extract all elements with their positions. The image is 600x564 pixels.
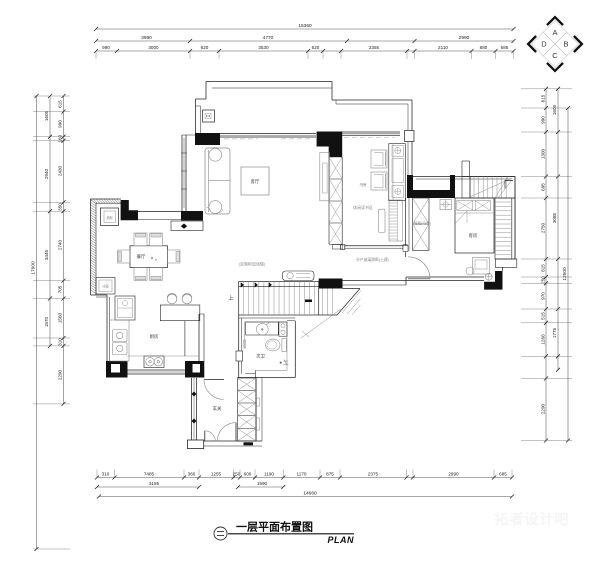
svg-text:2990: 2990 xyxy=(459,35,470,41)
svg-text:1605: 1605 xyxy=(552,104,557,115)
svg-text:拓者设计吧: 拓者设计吧 xyxy=(495,511,570,527)
svg-text:客房: 客房 xyxy=(469,232,478,239)
svg-text:990: 990 xyxy=(540,116,545,124)
svg-text:3155: 3155 xyxy=(149,481,160,486)
svg-text:2740: 2740 xyxy=(57,239,62,250)
svg-text:515: 515 xyxy=(540,312,545,320)
svg-text:3000: 3000 xyxy=(148,45,159,50)
svg-text:上: 上 xyxy=(228,294,234,302)
svg-text:3530: 3530 xyxy=(258,45,269,50)
svg-text:1190: 1190 xyxy=(264,471,274,476)
svg-text:一层平面布置图: 一层平面布置图 xyxy=(236,520,313,534)
svg-text:705: 705 xyxy=(57,285,62,293)
svg-text:次卫: 次卫 xyxy=(256,353,265,360)
svg-text:客厅: 客厅 xyxy=(251,178,260,185)
svg-text:685: 685 xyxy=(499,471,507,476)
svg-text:2750: 2750 xyxy=(540,222,545,233)
svg-text:620: 620 xyxy=(201,45,209,50)
svg-text:3085: 3085 xyxy=(552,212,557,223)
svg-text:685: 685 xyxy=(501,45,509,50)
svg-text:310: 310 xyxy=(102,471,110,476)
svg-text:615: 615 xyxy=(57,100,62,108)
svg-text:250: 250 xyxy=(233,471,241,476)
svg-text:✕: ✕ xyxy=(150,256,153,261)
svg-text:14660: 14660 xyxy=(303,490,317,496)
svg-text:2375: 2375 xyxy=(368,471,379,476)
svg-text:1605: 1605 xyxy=(44,110,49,121)
svg-text:17900: 17900 xyxy=(30,261,36,275)
svg-text:冰箱: 冰箱 xyxy=(102,284,109,289)
svg-text:600: 600 xyxy=(244,471,252,476)
svg-text:2290: 2290 xyxy=(57,369,62,380)
svg-text:1170: 1170 xyxy=(297,471,307,476)
svg-text:玄关: 玄关 xyxy=(213,405,222,412)
svg-text:2940: 2940 xyxy=(44,168,49,179)
svg-text:2990: 2990 xyxy=(448,471,459,476)
svg-text:2355: 2355 xyxy=(369,45,380,50)
svg-text:990: 990 xyxy=(57,120,62,128)
svg-text:1260: 1260 xyxy=(540,334,545,345)
svg-text:160: 160 xyxy=(57,134,62,142)
svg-text:A: A xyxy=(552,28,557,37)
svg-text:PLAN: PLAN xyxy=(328,535,355,545)
svg-text:1775: 1775 xyxy=(552,327,557,338)
svg-text:12500: 12500 xyxy=(562,267,568,281)
svg-text:3990: 3990 xyxy=(141,35,152,41)
svg-text:2110: 2110 xyxy=(438,45,448,50)
svg-text:350: 350 xyxy=(57,203,62,211)
svg-text:15360: 15360 xyxy=(298,23,312,29)
svg-text:C: C xyxy=(552,51,558,60)
svg-text:B: B xyxy=(563,40,568,49)
svg-text:1590: 1590 xyxy=(257,481,268,486)
svg-text:880: 880 xyxy=(480,45,488,50)
svg-text:1870: 1870 xyxy=(44,316,49,327)
svg-text:1560: 1560 xyxy=(57,312,62,323)
svg-text:1300: 1300 xyxy=(540,148,545,159)
svg-text:2430: 2430 xyxy=(57,165,62,176)
svg-text:615: 615 xyxy=(540,94,545,102)
svg-text:分户玻璃隔断(土建): 分户玻璃隔断(土建) xyxy=(356,257,390,262)
svg-text:鞋柜(可改): 鞋柜(可改) xyxy=(414,221,431,226)
svg-text:7485: 7485 xyxy=(144,471,155,476)
svg-text:1255: 1255 xyxy=(211,471,222,476)
svg-text:310: 310 xyxy=(57,338,62,346)
svg-text:815: 815 xyxy=(540,264,545,272)
svg-text:875: 875 xyxy=(326,471,334,476)
svg-text:990: 990 xyxy=(102,45,110,50)
svg-text:休闲读书区: 休闲读书区 xyxy=(353,204,373,210)
svg-text:360: 360 xyxy=(188,471,196,476)
svg-text:酒柜: 酒柜 xyxy=(106,215,113,220)
svg-text:970: 970 xyxy=(540,292,545,300)
svg-text:695: 695 xyxy=(540,183,545,191)
svg-text:4770: 4770 xyxy=(263,35,274,41)
svg-text:620: 620 xyxy=(312,45,320,50)
svg-text:书房: 书房 xyxy=(359,182,367,187)
svg-text:餐厅: 餐厅 xyxy=(137,253,146,260)
svg-text:D: D xyxy=(541,40,547,49)
svg-text:3445: 3445 xyxy=(44,249,49,260)
svg-text:(定制柜现场做): (定制柜现场做) xyxy=(239,261,266,267)
svg-text:厨房: 厨房 xyxy=(150,333,159,340)
svg-text:2290: 2290 xyxy=(540,403,545,414)
